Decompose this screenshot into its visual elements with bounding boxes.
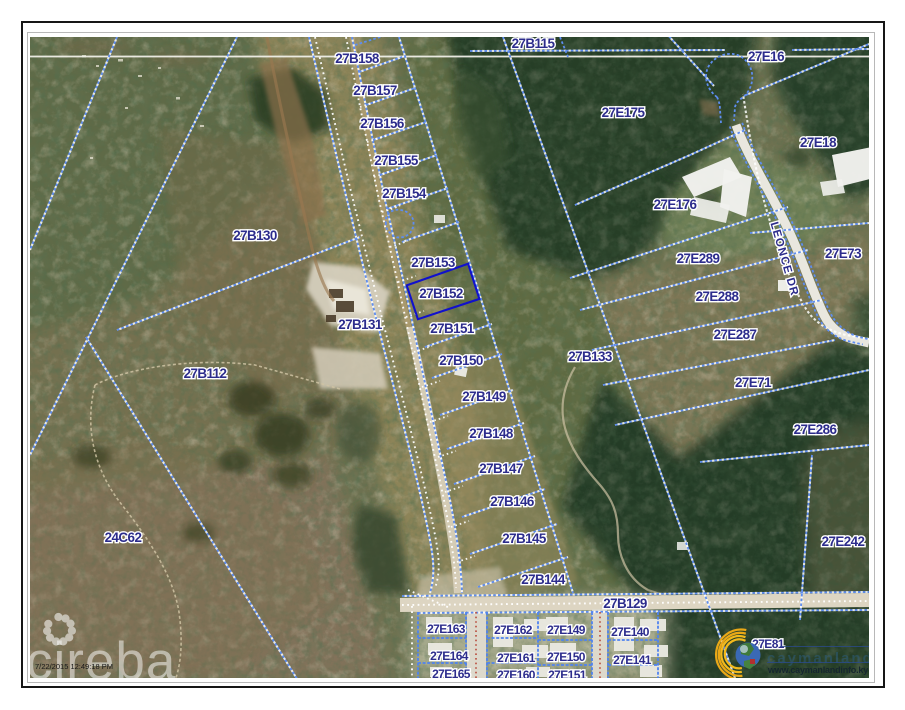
svg-text:27B145: 27B145 — [502, 531, 547, 546]
svg-text:27E150: 27E150 — [547, 650, 586, 664]
svg-text:27B146: 27B146 — [490, 494, 534, 509]
svg-text:27E163: 27E163 — [427, 622, 466, 636]
svg-text:27E16: 27E16 — [748, 49, 784, 64]
svg-text:27E149: 27E149 — [547, 623, 586, 637]
svg-text:27E286: 27E286 — [794, 422, 837, 437]
svg-text:27E18: 27E18 — [800, 135, 837, 150]
svg-text:27E288: 27E288 — [696, 289, 740, 304]
svg-text:27B147: 27B147 — [479, 461, 523, 476]
svg-text:27E160: 27E160 — [497, 668, 536, 678]
svg-text:27B157: 27B157 — [353, 83, 397, 98]
svg-text:27E164: 27E164 — [430, 649, 469, 663]
svg-text:27B144: 27B144 — [521, 572, 566, 587]
svg-text:27E242: 27E242 — [822, 534, 865, 549]
svg-text:27B156: 27B156 — [360, 116, 404, 131]
svg-text:27E71: 27E71 — [735, 375, 772, 390]
svg-text:27E176: 27E176 — [654, 197, 697, 212]
svg-text:27E73: 27E73 — [825, 246, 861, 261]
svg-text:27E151: 27E151 — [548, 668, 587, 678]
svg-text:27B129: 27B129 — [603, 596, 647, 611]
svg-text:27B148: 27B148 — [469, 426, 514, 441]
svg-text:27B131: 27B131 — [338, 317, 383, 332]
svg-text:27E140: 27E140 — [611, 625, 650, 639]
svg-text:27B115: 27B115 — [512, 37, 556, 51]
svg-text:27B112: 27B112 — [184, 366, 227, 381]
svg-text:27E175: 27E175 — [602, 105, 646, 120]
svg-text:27B153: 27B153 — [411, 255, 455, 270]
svg-text:27E162: 27E162 — [494, 623, 533, 637]
svg-text:27B133: 27B133 — [568, 349, 612, 364]
svg-text:27B130: 27B130 — [233, 228, 277, 243]
svg-text:27B152: 27B152 — [419, 286, 463, 301]
svg-text:27E141: 27E141 — [613, 653, 652, 667]
svg-text:24C62: 24C62 — [105, 530, 142, 545]
svg-text:27B149: 27B149 — [462, 389, 506, 404]
svg-text:27B158: 27B158 — [335, 51, 380, 66]
svg-text:27E289: 27E289 — [677, 251, 720, 266]
svg-text:27B154: 27B154 — [382, 186, 427, 201]
svg-text:27E287: 27E287 — [714, 327, 757, 342]
svg-text:27E165: 27E165 — [432, 667, 471, 678]
svg-text:27B150: 27B150 — [439, 353, 483, 368]
svg-text:27B155: 27B155 — [374, 153, 419, 168]
svg-text:7/22/2015 12:49:18 PM: 7/22/2015 12:49:18 PM — [35, 662, 113, 671]
svg-text:cireba: cireba — [30, 632, 176, 678]
svg-text:27E161: 27E161 — [497, 651, 536, 665]
svg-text:www.caymanlandinfo.ky: www.caymanlandinfo.ky — [767, 665, 868, 675]
svg-text:27B151: 27B151 — [430, 321, 475, 336]
